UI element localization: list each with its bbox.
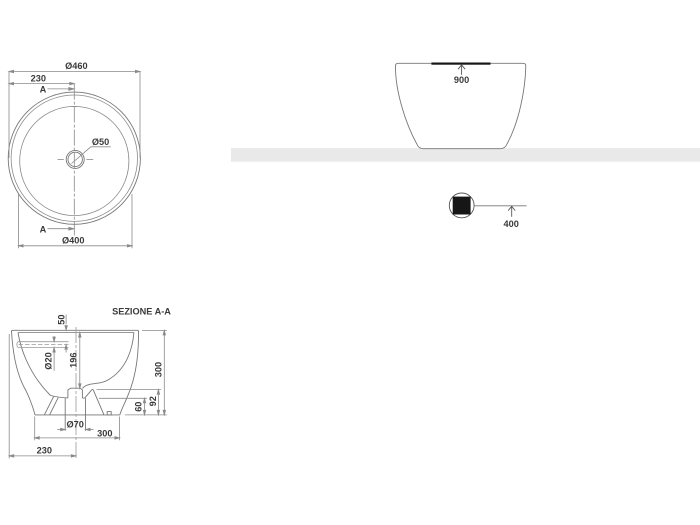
svg-text:400: 400	[504, 219, 519, 229]
svg-text:300: 300	[97, 429, 112, 439]
svg-text:92: 92	[148, 396, 158, 406]
svg-text:A: A	[40, 224, 47, 234]
svg-text:50: 50	[56, 314, 66, 324]
svg-text:Ø70: Ø70	[67, 420, 84, 430]
svg-text:300: 300	[154, 362, 164, 377]
svg-text:Ø460: Ø460	[65, 61, 87, 71]
svg-text:Ø20: Ø20	[44, 352, 54, 369]
svg-text:196: 196	[68, 353, 78, 368]
svg-text:SEZIONE A-A: SEZIONE A-A	[112, 307, 171, 317]
svg-text:Ø50: Ø50	[92, 137, 109, 147]
svg-text:60: 60	[134, 402, 144, 412]
svg-text:230: 230	[37, 445, 52, 455]
svg-text:900: 900	[454, 75, 469, 85]
svg-text:A: A	[40, 85, 47, 95]
svg-text:Ø400: Ø400	[62, 235, 84, 245]
svg-text:230: 230	[31, 73, 46, 83]
